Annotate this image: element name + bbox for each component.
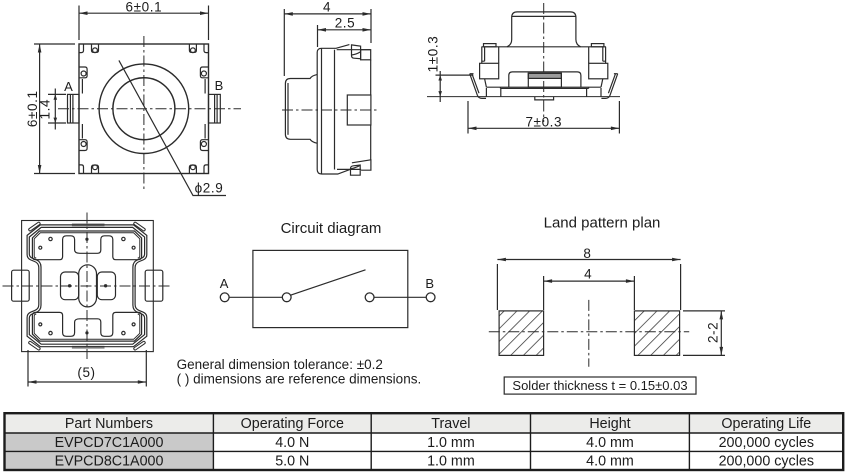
svg-text:200,000 cycles: 200,000 cycles xyxy=(719,454,814,470)
svg-text:4: 4 xyxy=(323,0,331,15)
svg-text:B: B xyxy=(425,276,434,291)
svg-text:A: A xyxy=(220,276,229,291)
svg-text:( ) dimensions are reference: ( ) dimensions are reference dimensions. xyxy=(177,371,422,386)
svg-text:1.4: 1.4 xyxy=(38,99,53,120)
svg-text:1.0 mm: 1.0 mm xyxy=(427,435,475,451)
svg-text:Part Numbers: Part Numbers xyxy=(65,416,153,432)
svg-text:4: 4 xyxy=(584,267,592,282)
svg-text:ϕ2.9: ϕ2.9 xyxy=(195,181,224,196)
svg-text:Land pattern plan: Land pattern plan xyxy=(544,215,661,232)
svg-text:4.0 mm: 4.0 mm xyxy=(586,454,634,470)
svg-text:1±0.3: 1±0.3 xyxy=(425,36,440,73)
svg-text:8: 8 xyxy=(583,246,591,261)
svg-text:EVPCD7C1A000: EVPCD7C1A000 xyxy=(55,435,164,451)
svg-text:B: B xyxy=(215,78,224,93)
svg-text:4.0 N: 4.0 N xyxy=(275,435,309,451)
svg-text:6±0.1: 6±0.1 xyxy=(126,0,163,15)
svg-text:2.5: 2.5 xyxy=(335,16,356,31)
svg-text:Solder thickness t = 0.15±0.03: Solder thickness t = 0.15±0.03 xyxy=(512,378,687,393)
svg-text:4.0 mm: 4.0 mm xyxy=(586,435,634,451)
svg-text:Travel: Travel xyxy=(431,416,470,432)
svg-text:200,000 cycles: 200,000 cycles xyxy=(719,435,814,451)
svg-text:7±0.3: 7±0.3 xyxy=(525,114,562,129)
svg-text:EVPCD8C1A000: EVPCD8C1A000 xyxy=(55,454,164,470)
svg-text:A: A xyxy=(64,79,73,94)
svg-text:Operating Life: Operating Life xyxy=(721,416,811,432)
svg-text:(5): (5) xyxy=(77,365,95,380)
svg-text:2-2: 2-2 xyxy=(706,322,721,343)
svg-text:Operating Force: Operating Force xyxy=(241,416,344,432)
svg-text:Circuit diagram: Circuit diagram xyxy=(281,220,382,237)
svg-text:Height: Height xyxy=(589,416,630,432)
svg-text:General dimension tolerance: ±: General dimension tolerance: ±0.2 xyxy=(177,357,383,372)
svg-text:5.0 N: 5.0 N xyxy=(275,454,309,470)
svg-text:1.0 mm: 1.0 mm xyxy=(427,454,475,470)
